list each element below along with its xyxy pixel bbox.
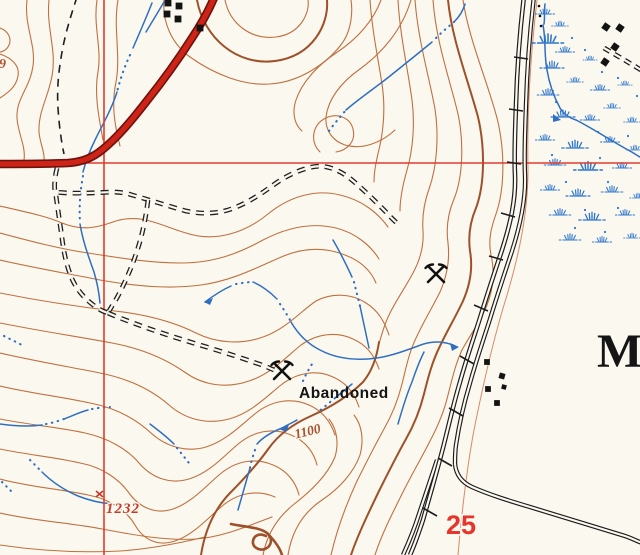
- place-name-label: M: [597, 325, 640, 378]
- section-number-label: 25: [446, 510, 476, 540]
- building-icon: [176, 3, 183, 10]
- building-icon: [494, 400, 500, 406]
- building-icon: [175, 16, 182, 23]
- mine-status-label: Abandoned: [299, 385, 389, 402]
- building-icon: [197, 25, 204, 32]
- building-icon: [164, 11, 171, 18]
- building-icon: [485, 386, 491, 392]
- edge-contour-label: 9: [0, 57, 6, 72]
- spot-elevation-value: 1232: [106, 501, 140, 517]
- topographic-map: 1232 9 1100 Abandoned 25 M: [0, 0, 640, 555]
- building-icon: [484, 359, 490, 365]
- building-icon: [165, 0, 172, 6]
